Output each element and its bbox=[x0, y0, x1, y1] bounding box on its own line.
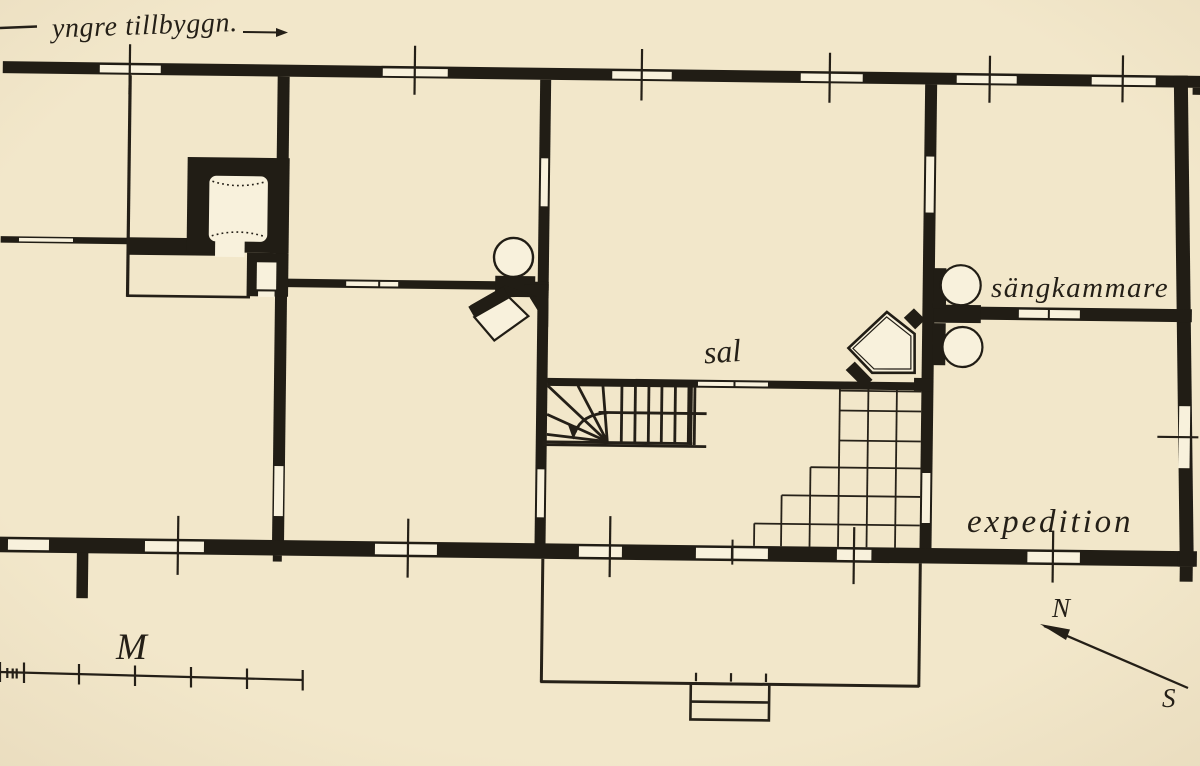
svg-text:yngre tillbyggn.: yngre tillbyggn. bbox=[48, 7, 238, 45]
svg-text:expedition: expedition bbox=[967, 504, 1133, 540]
svg-text:N: N bbox=[1051, 593, 1072, 623]
svg-text:S: S bbox=[1162, 683, 1176, 713]
svg-text:sängkammare: sängkammare bbox=[991, 272, 1169, 304]
svg-text:sal: sal bbox=[703, 332, 743, 371]
svg-text:M: M bbox=[115, 627, 149, 668]
